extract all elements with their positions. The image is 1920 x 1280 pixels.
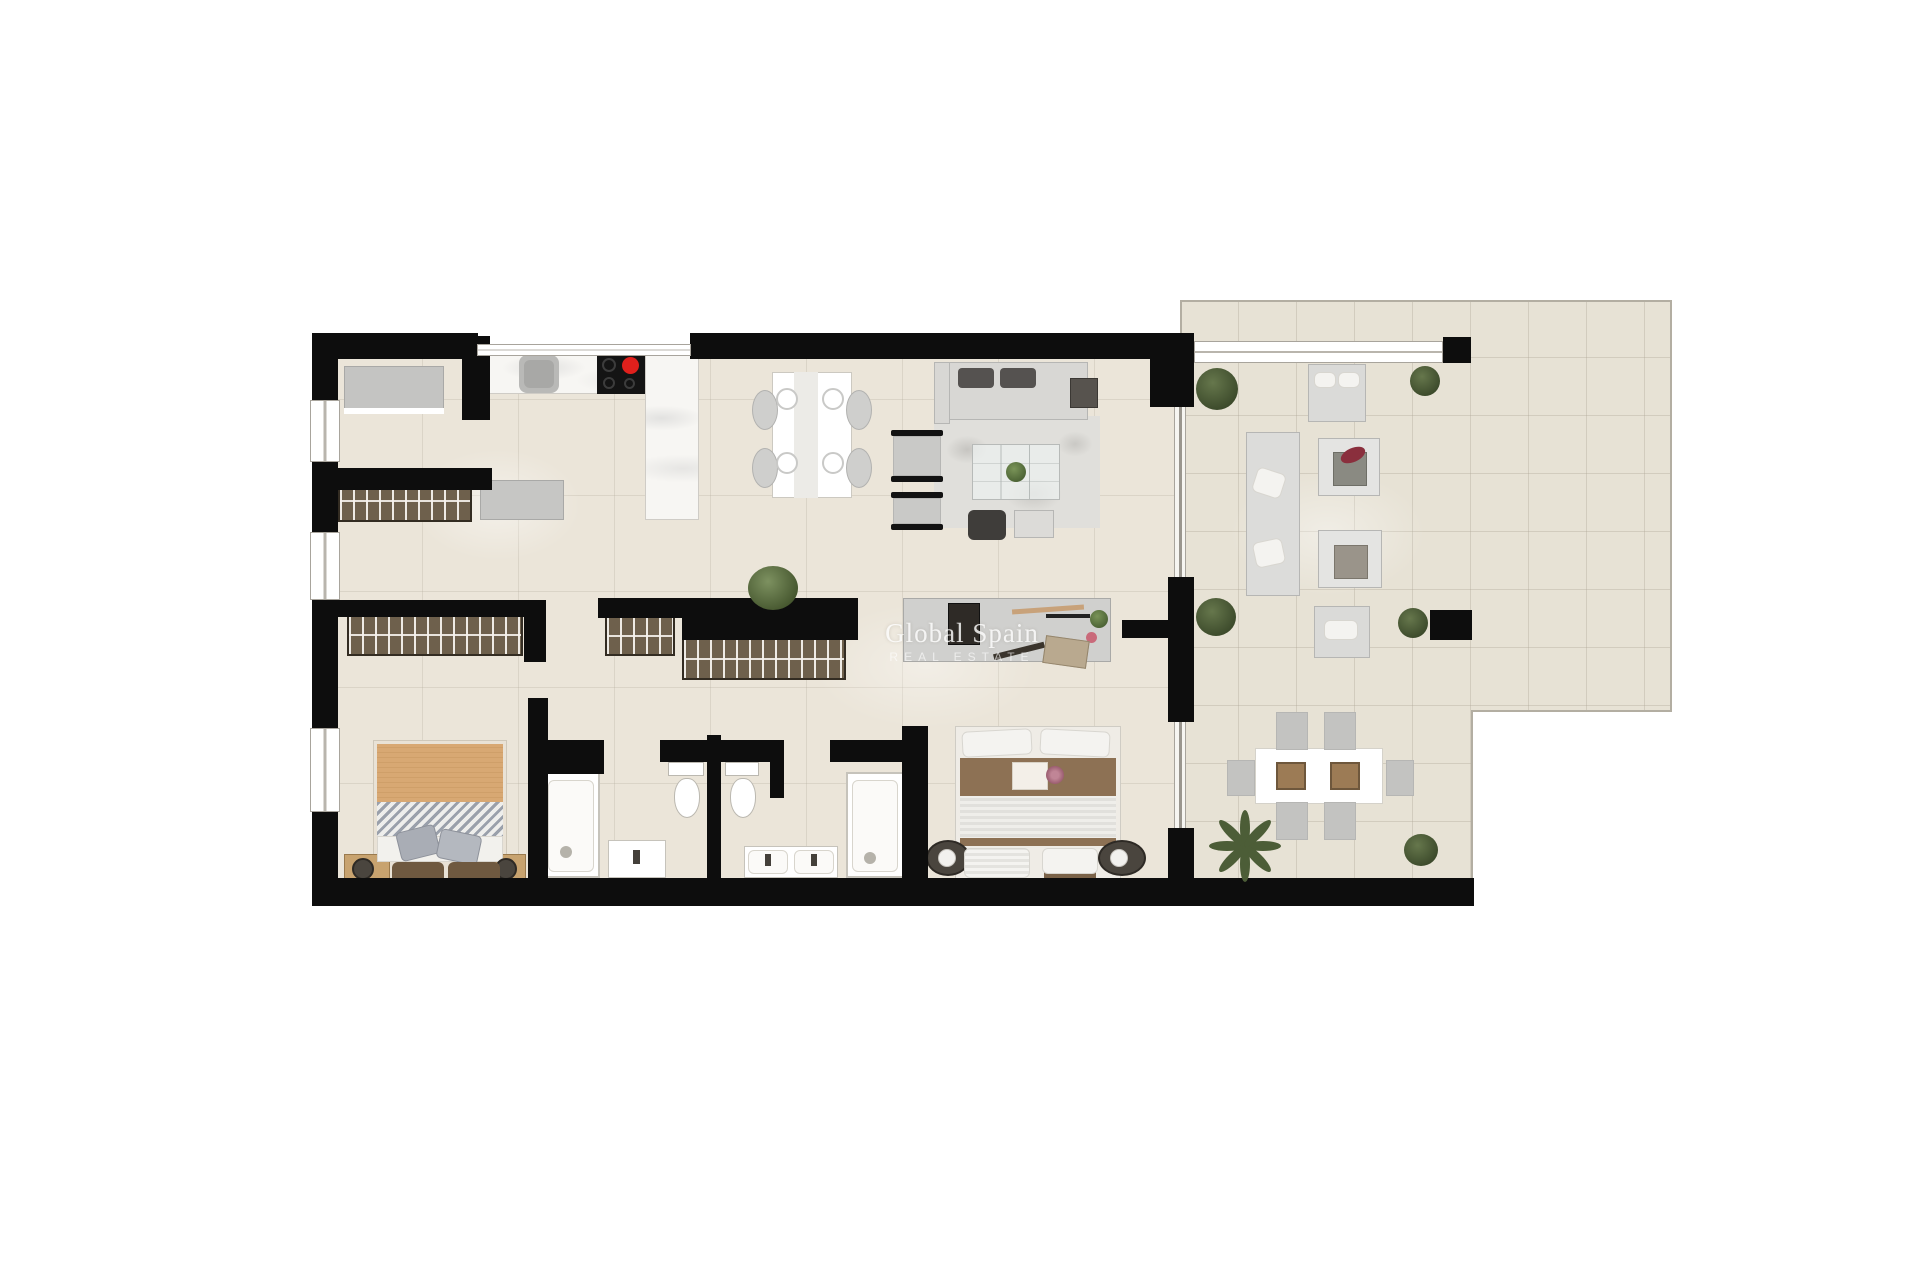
bed2-lamp-left <box>352 858 374 880</box>
dining-plate-2 <box>822 388 844 410</box>
living-bench <box>1014 510 1054 538</box>
bed1-foot-stool <box>1042 848 1098 874</box>
terrace-armchair-top-pillow-2 <box>1338 372 1360 388</box>
sliding-door-bedroom1-track <box>1179 722 1182 828</box>
bed1-lamp-right <box>1110 849 1128 867</box>
armchair-1-arm-bottom <box>891 476 943 482</box>
terrace-bush-2 <box>1410 366 1440 396</box>
kitchen-island <box>645 350 699 520</box>
outdoor-tray-1 <box>1276 762 1306 790</box>
outdoor-chair-right <box>1386 760 1414 796</box>
armchair-1-arm-top <box>891 430 943 436</box>
hall-plant <box>748 566 798 610</box>
bath1-faucet <box>633 850 640 864</box>
wall-bedroom2-jamb <box>524 600 546 662</box>
outdoor-tray-2 <box>1330 762 1360 790</box>
outdoor-table <box>1255 748 1383 804</box>
terrace-palm-plant <box>1208 806 1282 876</box>
sofa-cushion-1 <box>958 368 994 388</box>
utility-counter <box>344 366 444 410</box>
wall-right-top-corner <box>1150 333 1194 407</box>
dining-plate-4 <box>822 452 844 474</box>
wall-utility-bottom <box>312 468 492 490</box>
bed1-duvet <box>960 796 1116 840</box>
bed1-foot-band <box>960 838 1116 846</box>
terrace-bush-1 <box>1196 368 1238 410</box>
dining-chair-4 <box>846 448 872 488</box>
sliding-door-living-track <box>1179 405 1182 577</box>
wall-right-mid <box>1168 577 1194 722</box>
bath1-toilet-cistern <box>668 762 704 776</box>
wardrobe-bedroom2 <box>347 612 523 656</box>
armchair-2-arm-top <box>891 492 943 498</box>
window-kitchen <box>477 344 691 356</box>
terrace-bush-5 <box>1404 834 1438 866</box>
wall-right-tab <box>1122 620 1168 638</box>
watermark-title: Global Spain <box>812 618 1112 649</box>
bath1-shower-tray <box>548 780 594 872</box>
hall-cabinet <box>480 480 564 520</box>
armchair-1 <box>893 436 941 476</box>
dining-plate-1 <box>776 388 798 410</box>
floor-plan: Global Spain REAL ESTATE <box>0 0 1920 1280</box>
bed1-lamp-left <box>938 849 956 867</box>
wall-bedroom2-top <box>336 600 526 617</box>
dining-runner <box>794 372 818 498</box>
wall-top-main <box>690 333 1164 359</box>
sofa-side-table <box>1070 378 1098 408</box>
bed2-blanket-tan <box>377 744 503 802</box>
terrace-bush-3 <box>1196 598 1236 636</box>
bath2-faucet-left <box>765 854 771 866</box>
window-hall <box>310 532 340 600</box>
wall-bath1-header-left <box>540 740 604 774</box>
wall-bedroom2-right <box>528 698 548 878</box>
dining-chair-3 <box>846 390 872 430</box>
bath2-shower-drain <box>864 852 876 864</box>
wall-closet-mid-a <box>598 598 682 618</box>
kitchen-sink-basin <box>524 360 554 388</box>
outdoor-chair-bottom-2 <box>1324 802 1356 840</box>
utility-counter-edge <box>344 408 444 414</box>
bath1-shower-drain <box>560 846 572 858</box>
bath2-toilet-cistern <box>725 762 759 776</box>
outdoor-chair-top-2 <box>1324 712 1356 750</box>
terrace-armchair-top-pillow-1 <box>1314 372 1336 388</box>
terrace-pillar-mid <box>1430 610 1472 640</box>
bed1-pillow-low <box>964 848 1030 878</box>
living-sofa-arm <box>934 362 950 424</box>
dining-chair-1 <box>752 390 778 430</box>
coffee-table-plant <box>1006 462 1026 482</box>
terrace-pillar-top <box>1443 337 1471 363</box>
bed1-flowers <box>1046 766 1064 784</box>
bed1-open-book <box>1012 762 1048 790</box>
wardrobe-corridor <box>605 614 675 656</box>
armchair-2-arm-bottom <box>891 524 943 530</box>
terrace-edge-right <box>1670 300 1672 712</box>
bed1-pillow-top-1 <box>961 728 1032 758</box>
wall-bath2-right <box>902 726 928 878</box>
wall-bottom <box>312 878 1474 906</box>
armchair-2 <box>893 498 941 524</box>
dining-plate-3 <box>776 452 798 474</box>
window-bedroom2 <box>310 728 340 812</box>
terrace-bush-4 <box>1398 608 1428 638</box>
bath1-toilet-bowl <box>674 778 700 818</box>
bath2-faucet-right <box>811 854 817 866</box>
watermark: Global Spain REAL ESTATE <box>812 618 1112 664</box>
living-pouf <box>968 510 1006 540</box>
hob-burner-4 <box>624 378 635 389</box>
dining-chair-2 <box>752 448 778 488</box>
terrace-sofa <box>1246 432 1300 596</box>
sofa-cushion-2 <box>1000 368 1036 388</box>
terrace-edge-step-vertical <box>1471 710 1473 878</box>
terrace-armchair-bottom-pillow <box>1324 620 1358 640</box>
window-utility <box>310 400 340 462</box>
wall-bath-divider <box>707 735 721 878</box>
terrace-edge-top <box>1180 300 1672 302</box>
watermark-subtitle: REAL ESTATE <box>812 650 1112 664</box>
wall-right-low <box>1168 828 1194 880</box>
hob-burner-3 <box>603 377 615 389</box>
terrace-table-2-top <box>1334 545 1368 579</box>
outdoor-chair-left <box>1227 760 1255 796</box>
hob-burner-on <box>622 357 639 374</box>
window-terrace-top <box>1194 341 1443 363</box>
wall-bath-jamb <box>770 740 784 798</box>
outdoor-chair-top-1 <box>1276 712 1308 750</box>
terrace-edge-step <box>1473 710 1672 712</box>
bath2-toilet-bowl <box>730 778 756 818</box>
hob-burner-1 <box>602 358 616 372</box>
bed1-pillow-top-2 <box>1039 728 1110 758</box>
